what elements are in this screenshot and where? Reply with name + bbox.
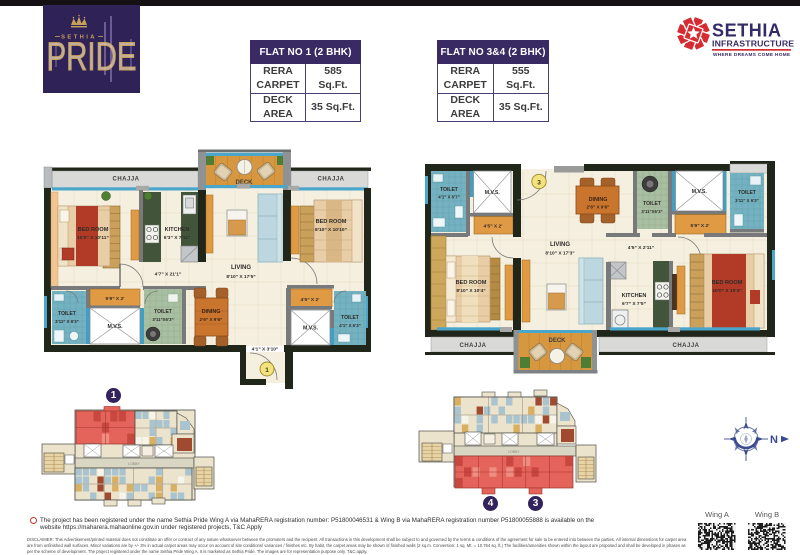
svg-text:8’10” X 17’3”: 8’10” X 17’3” <box>545 251 575 257</box>
svg-text:3’11”X6’3”: 3’11”X6’3” <box>152 317 173 322</box>
svg-text:TOILET: TOILET <box>58 311 76 317</box>
svg-text:LOBBY: LOBBY <box>508 450 520 454</box>
svg-text:M.V.S.: M.V.S. <box>692 189 708 195</box>
svg-text:TOILET: TOILET <box>440 187 458 193</box>
svg-text:3’11”X6’3”: 3’11”X6’3” <box>641 209 662 214</box>
svg-text:KITCHEN: KITCHEN <box>165 227 190 233</box>
svg-text:4’1” X 6’3”: 4’1” X 6’3” <box>339 323 361 328</box>
svg-text:LOBBY: LOBBY <box>128 462 140 466</box>
svg-text:2’6” X 9’6”: 2’6” X 9’6” <box>587 205 610 210</box>
svg-text:WHERE DREAMS COME HOME: WHERE DREAMS COME HOME <box>713 52 791 57</box>
svg-text:10’0” X 10’11”: 10’0” X 10’11” <box>77 235 109 241</box>
svg-text:CHAJJA: CHAJJA <box>672 343 699 349</box>
svg-text:8’10” X 10’4”: 8’10” X 10’4” <box>456 288 486 294</box>
svg-text:4’1” X 3’10”: 4’1” X 3’10” <box>252 347 279 353</box>
svg-text:3: 3 <box>537 180 541 187</box>
svg-text:N: N <box>770 434 778 446</box>
svg-text:10’0” X 10’4”: 10’0” X 10’4” <box>712 288 742 294</box>
svg-text:DINING: DINING <box>589 197 608 203</box>
svg-text:4’5” X 2’11”: 4’5” X 2’11” <box>628 245 655 251</box>
svg-text:TOILET: TOILET <box>154 309 172 315</box>
svg-text:SETHIA: SETHIA <box>712 21 782 41</box>
svg-text:6’3” X 7’11”: 6’3” X 7’11” <box>164 235 191 241</box>
svg-text:4’1” X 6’7”: 4’1” X 6’7” <box>438 195 460 200</box>
svg-text:BED ROOM: BED ROOM <box>78 227 109 233</box>
svg-text:TOILET: TOILET <box>341 315 359 321</box>
svg-text:PRIDE: PRIDE <box>47 35 137 79</box>
svg-text:BED ROOM: BED ROOM <box>316 219 347 225</box>
svg-text:CHAJJA: CHAJJA <box>317 177 344 183</box>
svg-text:DINING: DINING <box>202 309 221 315</box>
svg-text:LIVING: LIVING <box>550 242 570 248</box>
svg-text:M.V.S.: M.V.S. <box>303 326 319 332</box>
svg-text:BED ROOM: BED ROOM <box>712 280 743 286</box>
svg-text:LIVING: LIVING <box>231 265 251 271</box>
svg-text:3’11” X 6’3”: 3’11” X 6’3” <box>735 198 759 203</box>
svg-text:8’10” X 17’5”: 8’10” X 17’5” <box>226 274 256 280</box>
svg-text:CHAJJA: CHAJJA <box>459 343 486 349</box>
svg-text:2’6” X 9’6”: 2’6” X 9’6” <box>200 317 223 322</box>
svg-text:4’7” X 21’1”: 4’7” X 21’1” <box>155 272 182 278</box>
svg-text:BED ROOM: BED ROOM <box>456 280 487 286</box>
svg-text:5’9” X 2’: 5’9” X 2’ <box>106 296 125 302</box>
svg-text:M.V.S.: M.V.S. <box>485 190 501 196</box>
svg-text:DECK: DECK <box>548 338 566 344</box>
svg-text:5’9” X 2’: 5’9” X 2’ <box>691 223 710 229</box>
svg-text:1: 1 <box>265 367 269 374</box>
svg-text:4’5” X 2’: 4’5” X 2’ <box>484 224 503 230</box>
svg-text:3’11” X 6’3”: 3’11” X 6’3” <box>55 319 79 324</box>
svg-text:INFRASTRUCTURE: INFRASTRUCTURE <box>712 39 794 49</box>
svg-text:KITCHEN: KITCHEN <box>622 293 647 299</box>
svg-text:CHAJJA: CHAJJA <box>112 177 139 183</box>
svg-text:6’7” X 7’5”: 6’7” X 7’5” <box>622 301 647 307</box>
svg-text:4’5” X 2’: 4’5” X 2’ <box>301 297 320 303</box>
svg-text:TOILET: TOILET <box>643 201 661 207</box>
svg-text:8’10” X 10’10”: 8’10” X 10’10” <box>315 227 348 233</box>
svg-text:M.V.S.: M.V.S. <box>107 324 123 330</box>
svg-text:TOILET: TOILET <box>738 190 756 196</box>
